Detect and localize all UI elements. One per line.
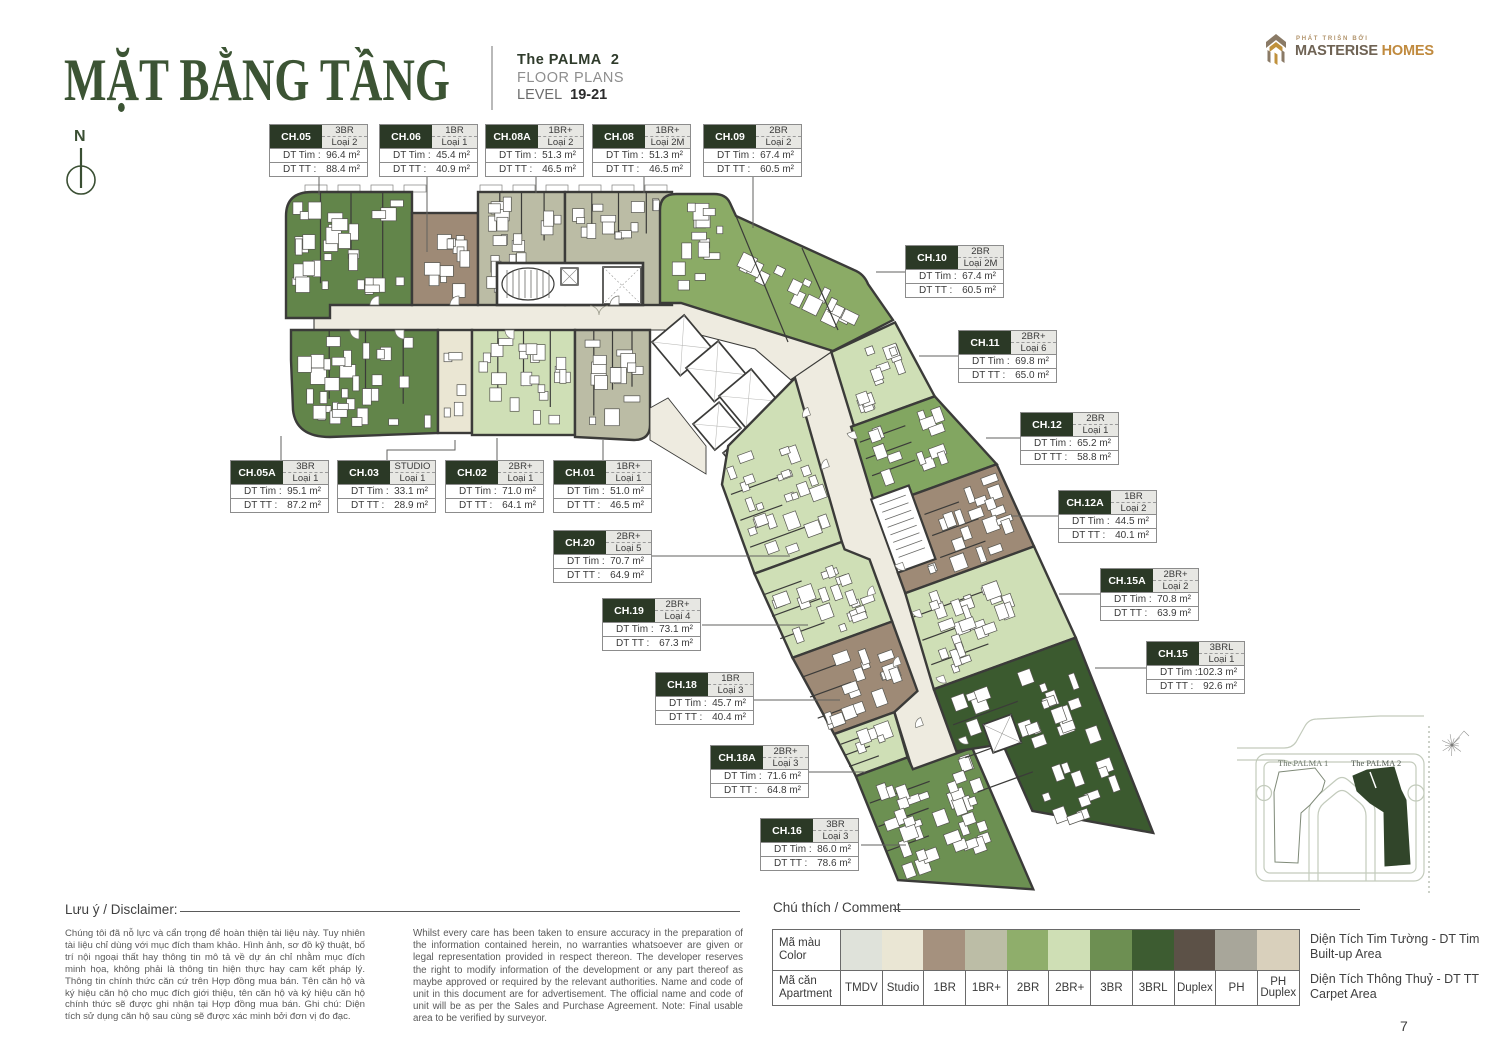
- svg-text:The PALMA 1: The PALMA 1: [1278, 758, 1328, 768]
- svg-text:The PALMA 2: The PALMA 2: [1351, 758, 1401, 768]
